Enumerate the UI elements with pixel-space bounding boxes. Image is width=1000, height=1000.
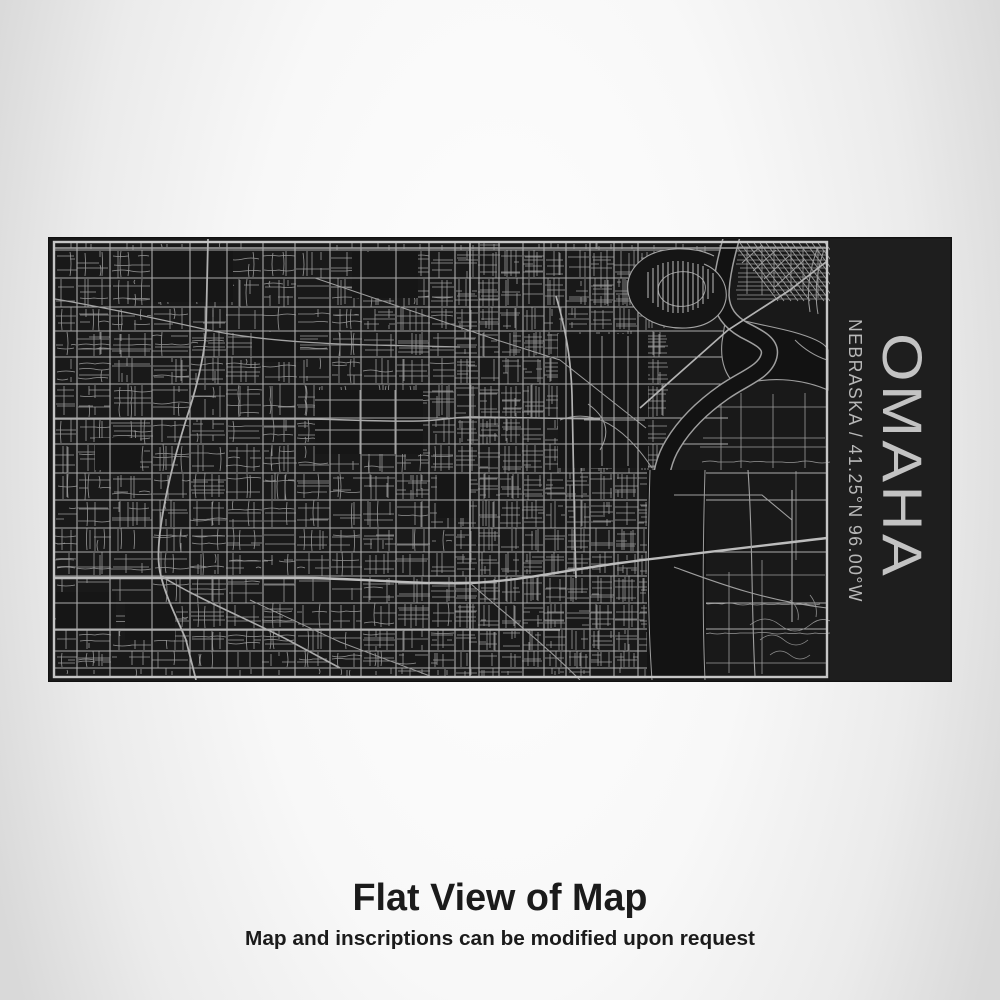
svg-text:Flat View of Map: Flat View of Map — [353, 877, 648, 919]
svg-text:Map and inscriptions can be mo: Map and inscriptions can be modified upo… — [245, 928, 755, 950]
svg-text:NEBRASKA / 41.25°N 96.00°W: NEBRASKA / 41.25°N 96.00°W — [845, 319, 865, 603]
svg-text:OMAHA: OMAHA — [871, 333, 934, 579]
